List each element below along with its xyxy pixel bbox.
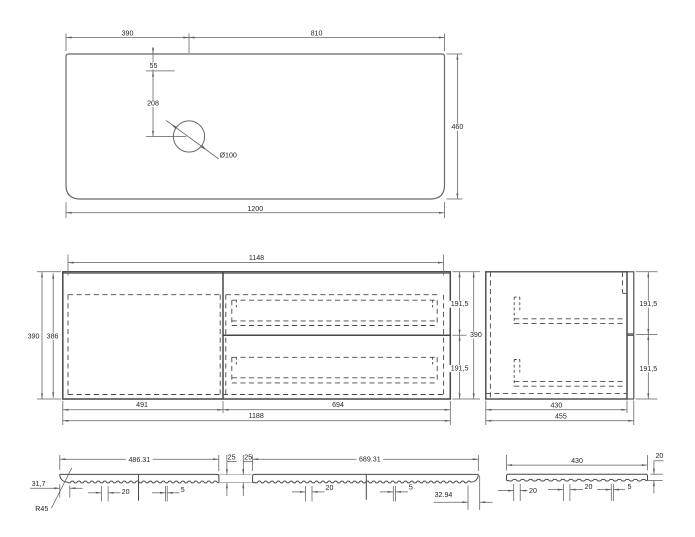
svg-text:191,5: 191,5 [451, 300, 469, 308]
svg-text:491: 491 [136, 401, 148, 409]
svg-text:1148: 1148 [249, 254, 264, 262]
svg-text:5: 5 [628, 483, 632, 491]
svg-text:191,5: 191,5 [639, 300, 657, 308]
svg-text:25: 25 [228, 454, 236, 462]
svg-text:32.94: 32.94 [435, 491, 453, 499]
svg-text:20: 20 [529, 487, 537, 495]
svg-text:390: 390 [28, 332, 40, 340]
svg-text:31,7: 31,7 [32, 480, 46, 488]
svg-text:694: 694 [332, 401, 344, 409]
svg-text:430: 430 [571, 457, 583, 465]
svg-text:R45: R45 [35, 505, 48, 513]
svg-text:386: 386 [47, 332, 59, 340]
svg-text:455: 455 [555, 412, 567, 420]
svg-text:25: 25 [244, 454, 252, 462]
svg-text:460: 460 [451, 123, 463, 131]
svg-text:20: 20 [655, 452, 663, 460]
svg-text:20: 20 [326, 484, 334, 492]
svg-text:208: 208 [147, 100, 159, 108]
svg-text:1200: 1200 [247, 205, 263, 213]
svg-text:20: 20 [122, 488, 130, 496]
svg-text:486.31: 486.31 [128, 456, 150, 464]
svg-text:191,5: 191,5 [451, 365, 469, 373]
svg-text:5: 5 [181, 486, 185, 494]
svg-text:430: 430 [550, 401, 562, 409]
svg-text:5: 5 [409, 484, 413, 492]
svg-text:191,5: 191,5 [639, 365, 657, 373]
svg-text:1188: 1188 [249, 412, 264, 420]
svg-text:390: 390 [470, 331, 482, 339]
svg-text:689.31: 689.31 [359, 456, 381, 464]
svg-text:810: 810 [311, 30, 323, 38]
svg-text:Ø100: Ø100 [220, 151, 237, 159]
svg-text:390: 390 [122, 30, 134, 38]
svg-text:20: 20 [585, 483, 593, 491]
svg-text:55: 55 [150, 62, 158, 70]
